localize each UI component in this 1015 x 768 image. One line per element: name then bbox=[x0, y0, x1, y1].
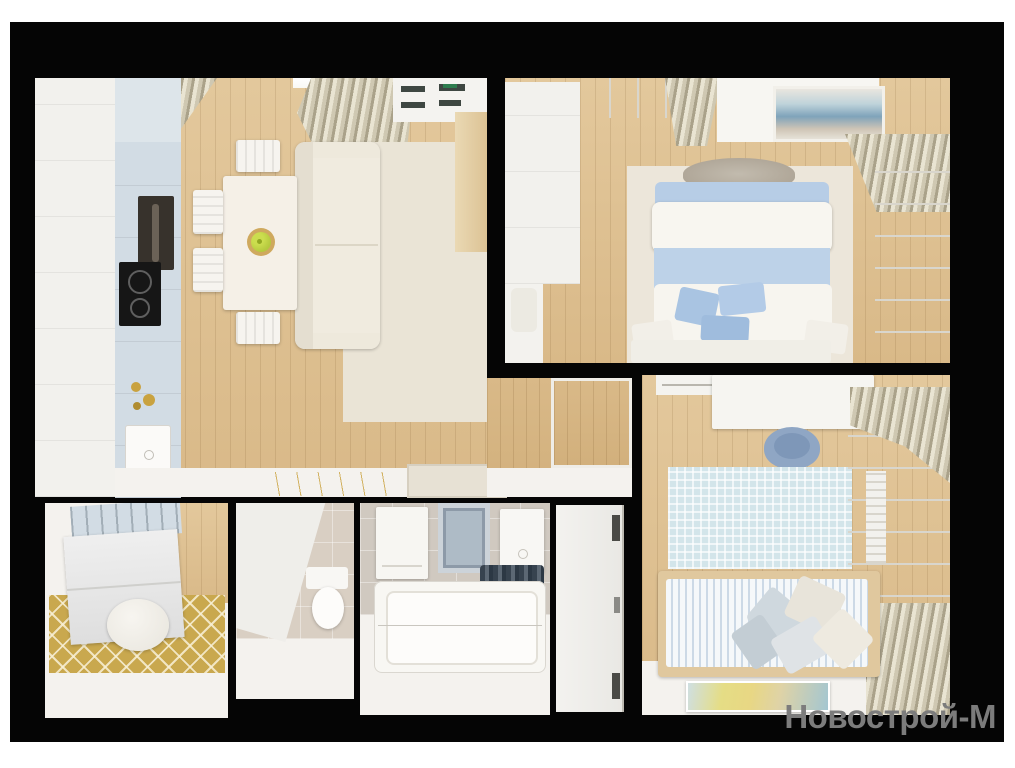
sofa-armrest bbox=[313, 333, 380, 349]
bed-bench bbox=[631, 340, 831, 363]
door-latch bbox=[614, 597, 620, 613]
chair bbox=[193, 248, 223, 292]
kitchen-upper-cabinet bbox=[115, 78, 181, 142]
door-hinge bbox=[612, 673, 620, 699]
cooktop-burner bbox=[130, 298, 150, 318]
desk-chair bbox=[764, 427, 820, 469]
chair bbox=[236, 140, 280, 172]
kids-bed bbox=[658, 571, 880, 677]
curtain-bedroom-top bbox=[665, 78, 721, 146]
hallway-door-frame bbox=[551, 378, 632, 468]
watermark-text: Новострой-М bbox=[784, 698, 996, 736]
toilet-bowl bbox=[312, 587, 344, 629]
chair bbox=[193, 190, 223, 234]
fruit-bowl bbox=[247, 228, 275, 256]
bathtub bbox=[374, 581, 546, 673]
gold-twig-floor-decor bbox=[270, 472, 396, 496]
bed-cushion bbox=[700, 315, 749, 343]
door-hinge bbox=[612, 515, 620, 541]
bathroom-sink bbox=[500, 509, 544, 573]
hallway bbox=[487, 378, 632, 497]
kitchen-cabinets-white bbox=[35, 78, 115, 497]
bath-mat bbox=[438, 503, 490, 573]
rug-kids bbox=[668, 467, 852, 569]
room-bedroom bbox=[505, 78, 950, 363]
bedroom-wardrobe bbox=[505, 82, 580, 284]
bed-cushion bbox=[718, 282, 767, 317]
kitchen-gold-decor bbox=[129, 380, 159, 414]
bedroom-chair bbox=[511, 288, 537, 332]
washing-machine bbox=[376, 507, 428, 579]
sofa-cushion-seam bbox=[315, 244, 378, 246]
shower-rail bbox=[378, 625, 542, 626]
room-living-kitchen bbox=[35, 78, 487, 497]
room-toilet bbox=[236, 503, 354, 699]
room-bathroom bbox=[360, 503, 550, 715]
sofa bbox=[295, 142, 380, 349]
toilet-tank bbox=[306, 567, 348, 589]
chair bbox=[236, 312, 280, 344]
window-bedroom-right bbox=[875, 168, 950, 363]
vent-indicator bbox=[443, 84, 457, 88]
room-kids-bedroom bbox=[642, 375, 950, 715]
floorplan-page: Новострой-М bbox=[0, 0, 1015, 768]
sofa-armrest bbox=[313, 142, 380, 158]
room-entry-wardrobe bbox=[45, 503, 228, 718]
art-picture bbox=[773, 86, 885, 142]
radiator bbox=[866, 471, 886, 563]
oven-handle bbox=[152, 204, 159, 262]
bed-duvet-top bbox=[652, 202, 832, 252]
room-door-leaf bbox=[556, 505, 624, 712]
cooktop bbox=[119, 262, 161, 326]
cooktop-burner bbox=[128, 270, 152, 294]
tall-wood-cabinet bbox=[455, 112, 487, 252]
oven bbox=[138, 196, 174, 270]
pouf-ottoman bbox=[107, 599, 169, 651]
window-bedroom-top bbox=[583, 78, 669, 118]
sofa-backrest bbox=[295, 142, 313, 349]
hallway-white-strip bbox=[487, 468, 632, 497]
apartment-floorplan-render: Новострой-М bbox=[10, 22, 1004, 742]
bed-blue-blanket bbox=[654, 248, 830, 288]
